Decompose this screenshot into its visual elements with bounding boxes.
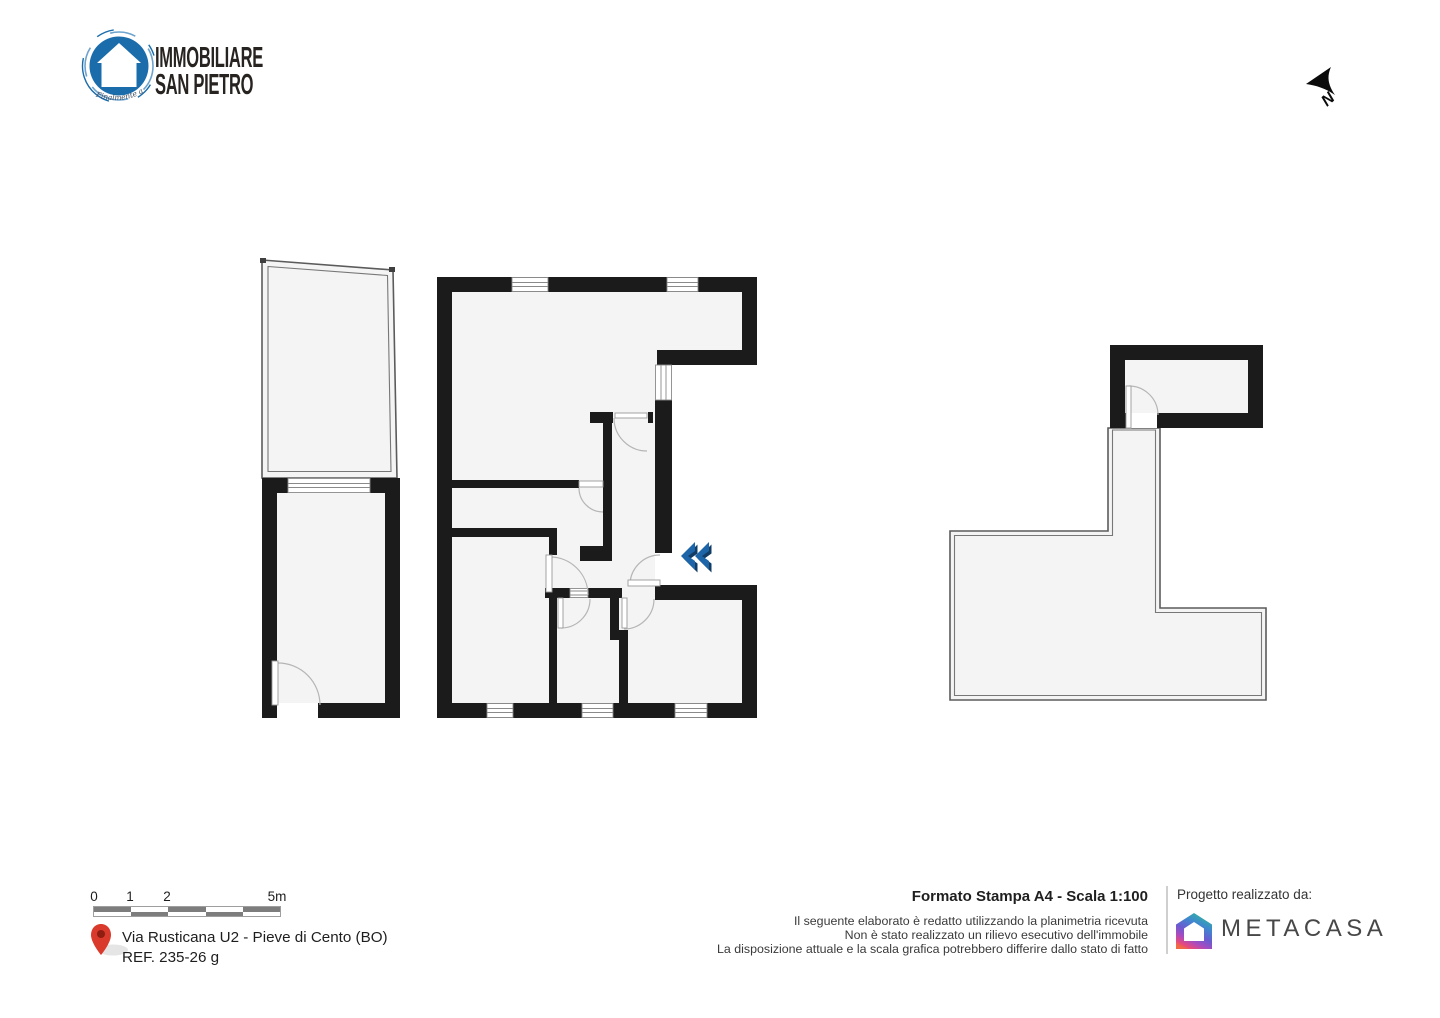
floorplan-main-unit [435,275,759,720]
disclaimer-line3: La disposizione attuale e la scala grafi… [717,942,1148,956]
scale-label-2: 2 [163,889,171,904]
footer-divider [1166,886,1168,954]
credit-brand: METACASA [1221,915,1387,943]
floorplan-left-unit [256,253,408,723]
scale-label-0: 0 [90,889,98,904]
metacasa-logo-icon [1174,911,1214,951]
print-format-title: Formato Stampa A4 - Scala 1:100 [912,888,1148,905]
isp-logo-icon: Finalmente a Casa [78,22,160,116]
credit-label: Progetto realizzato da: [1177,887,1312,902]
disclaimer-line1: Il seguente elaborato è redatto utilizza… [794,914,1148,928]
scale-label-5m: 5m [268,889,287,904]
floorplan-right-unit [945,340,1271,705]
floor [440,280,754,715]
logo-line2: SAN PIETRO [155,72,263,99]
disclaimer-line2: Non è stato realizzato un rilievo esecut… [845,928,1148,942]
logo-wordmark: IMMOBILIARE SAN PIETRO [155,45,263,99]
property-address: Via Rusticana U2 - Pieve di Cento (BO) R… [122,928,388,967]
address-line2: REF. 235-26 g [122,948,388,968]
scale-bar [93,906,281,917]
balcony-outline [262,260,397,478]
address-line1: Via Rusticana U2 - Pieve di Cento (BO) [122,928,388,948]
north-label: N [1318,89,1338,110]
entrance-chevron-icon [679,538,717,576]
north-arrow-icon: N [1300,60,1348,116]
floorplan-page: Finalmente a Casa IMMOBILIARE SAN PIETRO… [0,0,1440,1018]
window [288,479,370,493]
scale-label-1: 1 [126,889,134,904]
terrace-outline [950,428,1266,700]
logo-line1: IMMOBILIARE [155,45,263,72]
